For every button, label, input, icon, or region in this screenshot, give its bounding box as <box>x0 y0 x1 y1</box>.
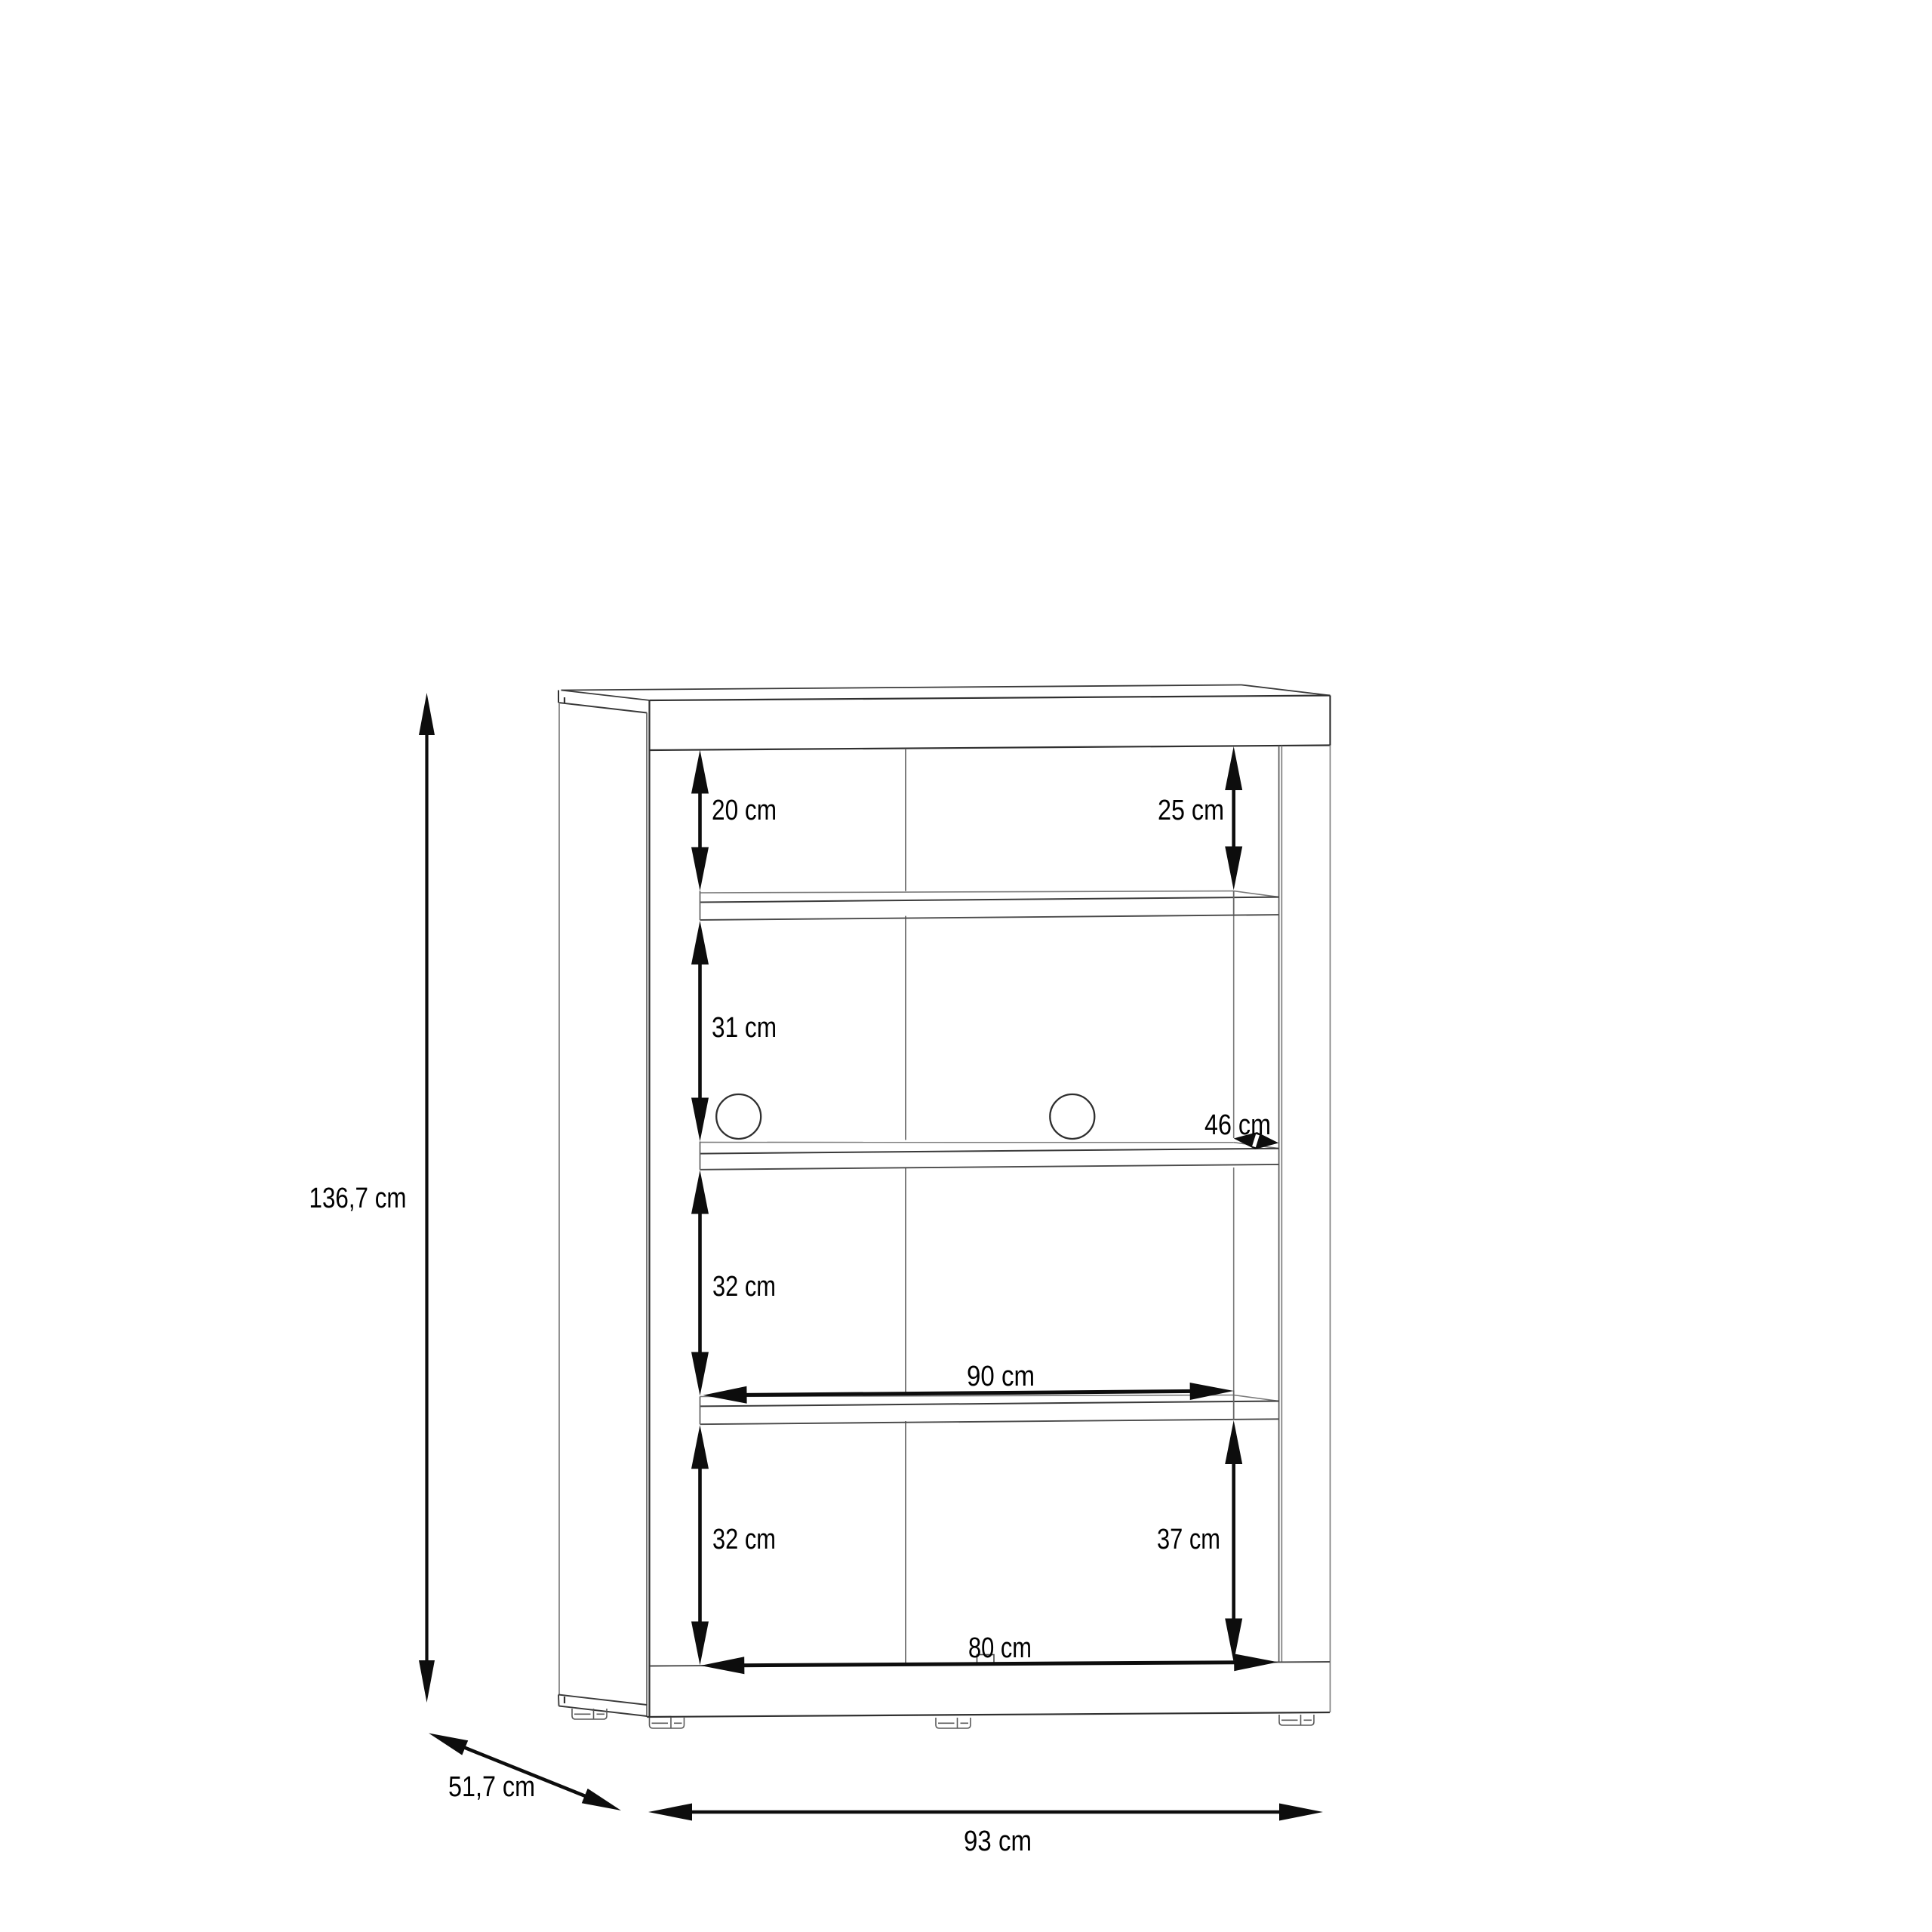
svg-text:25 cm: 25 cm <box>1158 795 1224 826</box>
svg-text:136,7 cm: 136,7 cm <box>309 1183 407 1214</box>
svg-text:37 cm: 37 cm <box>1157 1524 1220 1555</box>
svg-text:93 cm: 93 cm <box>964 1826 1032 1857</box>
svg-text:80 cm: 80 cm <box>968 1632 1032 1664</box>
svg-text:32 cm: 32 cm <box>712 1524 776 1555</box>
svg-text:90 cm: 90 cm <box>967 1361 1035 1392</box>
svg-text:31 cm: 31 cm <box>712 1012 777 1044</box>
svg-text:46 cm: 46 cm <box>1204 1109 1271 1141</box>
svg-text:32 cm: 32 cm <box>712 1271 776 1303</box>
svg-text:20 cm: 20 cm <box>712 795 777 826</box>
svg-text:51,7 cm: 51,7 cm <box>448 1771 535 1803</box>
